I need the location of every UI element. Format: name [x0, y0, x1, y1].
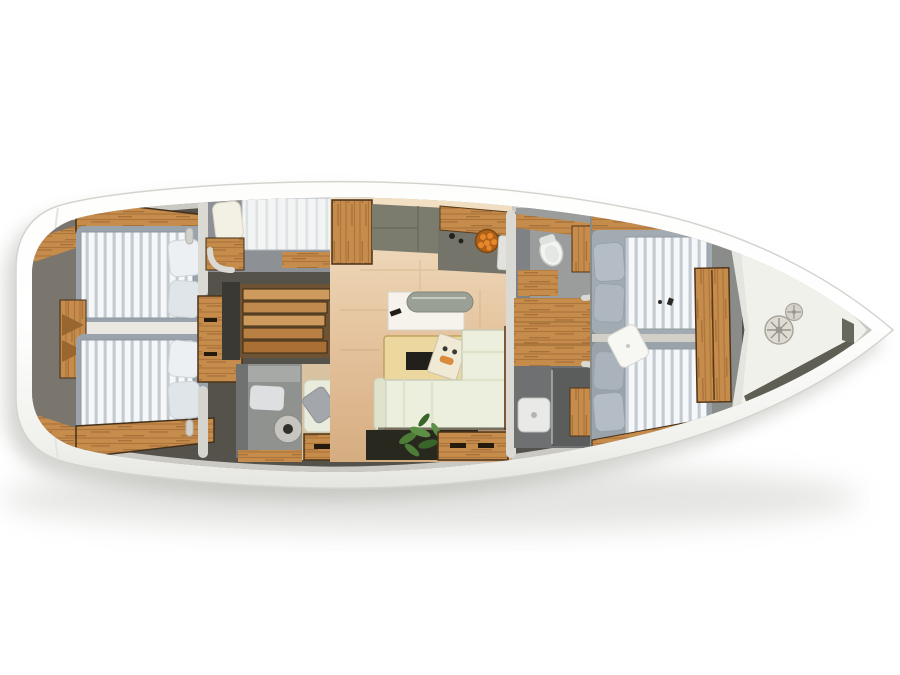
saloon-table	[384, 333, 468, 386]
windlass-drum-small	[786, 304, 803, 321]
aft-cabin-starboard	[76, 334, 214, 458]
pillow	[593, 283, 625, 323]
bolster-roll	[407, 292, 473, 312]
aft-cabin-port	[76, 200, 214, 324]
aft-centerline-wall	[70, 322, 210, 334]
vberth-port	[592, 230, 712, 334]
pillow	[212, 200, 244, 241]
deck-hatch-handle	[186, 420, 193, 436]
galley-cabinet	[332, 200, 372, 264]
windlass-drum-large	[765, 316, 793, 344]
head-floor-trim	[238, 450, 302, 462]
stair-well	[222, 282, 240, 360]
sofa-armrest	[374, 378, 386, 430]
forward-shower	[514, 366, 598, 448]
pillow	[592, 392, 625, 432]
pillow	[168, 381, 201, 419]
head-sink	[249, 385, 284, 411]
companionway-stairs	[222, 282, 334, 360]
shower-drain	[531, 412, 537, 418]
berth-step	[282, 252, 332, 268]
pillow	[167, 340, 201, 379]
toilet-bowl-center	[283, 424, 293, 434]
bow-wardrobe	[695, 268, 731, 403]
yacht-deck-plan-page: Sailing yacht interior deck plan — top-d…	[0, 0, 900, 675]
galley-faucet	[449, 233, 455, 239]
pillow	[167, 239, 201, 278]
aft-head	[236, 364, 302, 462]
fruit-bowl	[476, 230, 499, 253]
head-counter	[248, 366, 300, 382]
galley-counter	[372, 204, 446, 254]
under-sofa-drawers	[438, 432, 508, 460]
yacht-deck-plan: Sailing yacht interior deck plan — top-d…	[0, 0, 900, 675]
pillow	[168, 280, 201, 318]
pillow	[593, 242, 626, 282]
deck-hatch-handle	[186, 228, 193, 244]
head-floor	[518, 270, 558, 296]
single-berth-mattress	[242, 198, 338, 250]
saloon	[330, 196, 521, 462]
small-item	[658, 300, 662, 304]
galley-knob	[459, 239, 464, 244]
corridor-floor	[514, 298, 596, 366]
mid-single-berth-cabin	[206, 198, 338, 272]
aft-bulkhead-bottom	[198, 386, 208, 458]
sideboard	[388, 292, 473, 330]
